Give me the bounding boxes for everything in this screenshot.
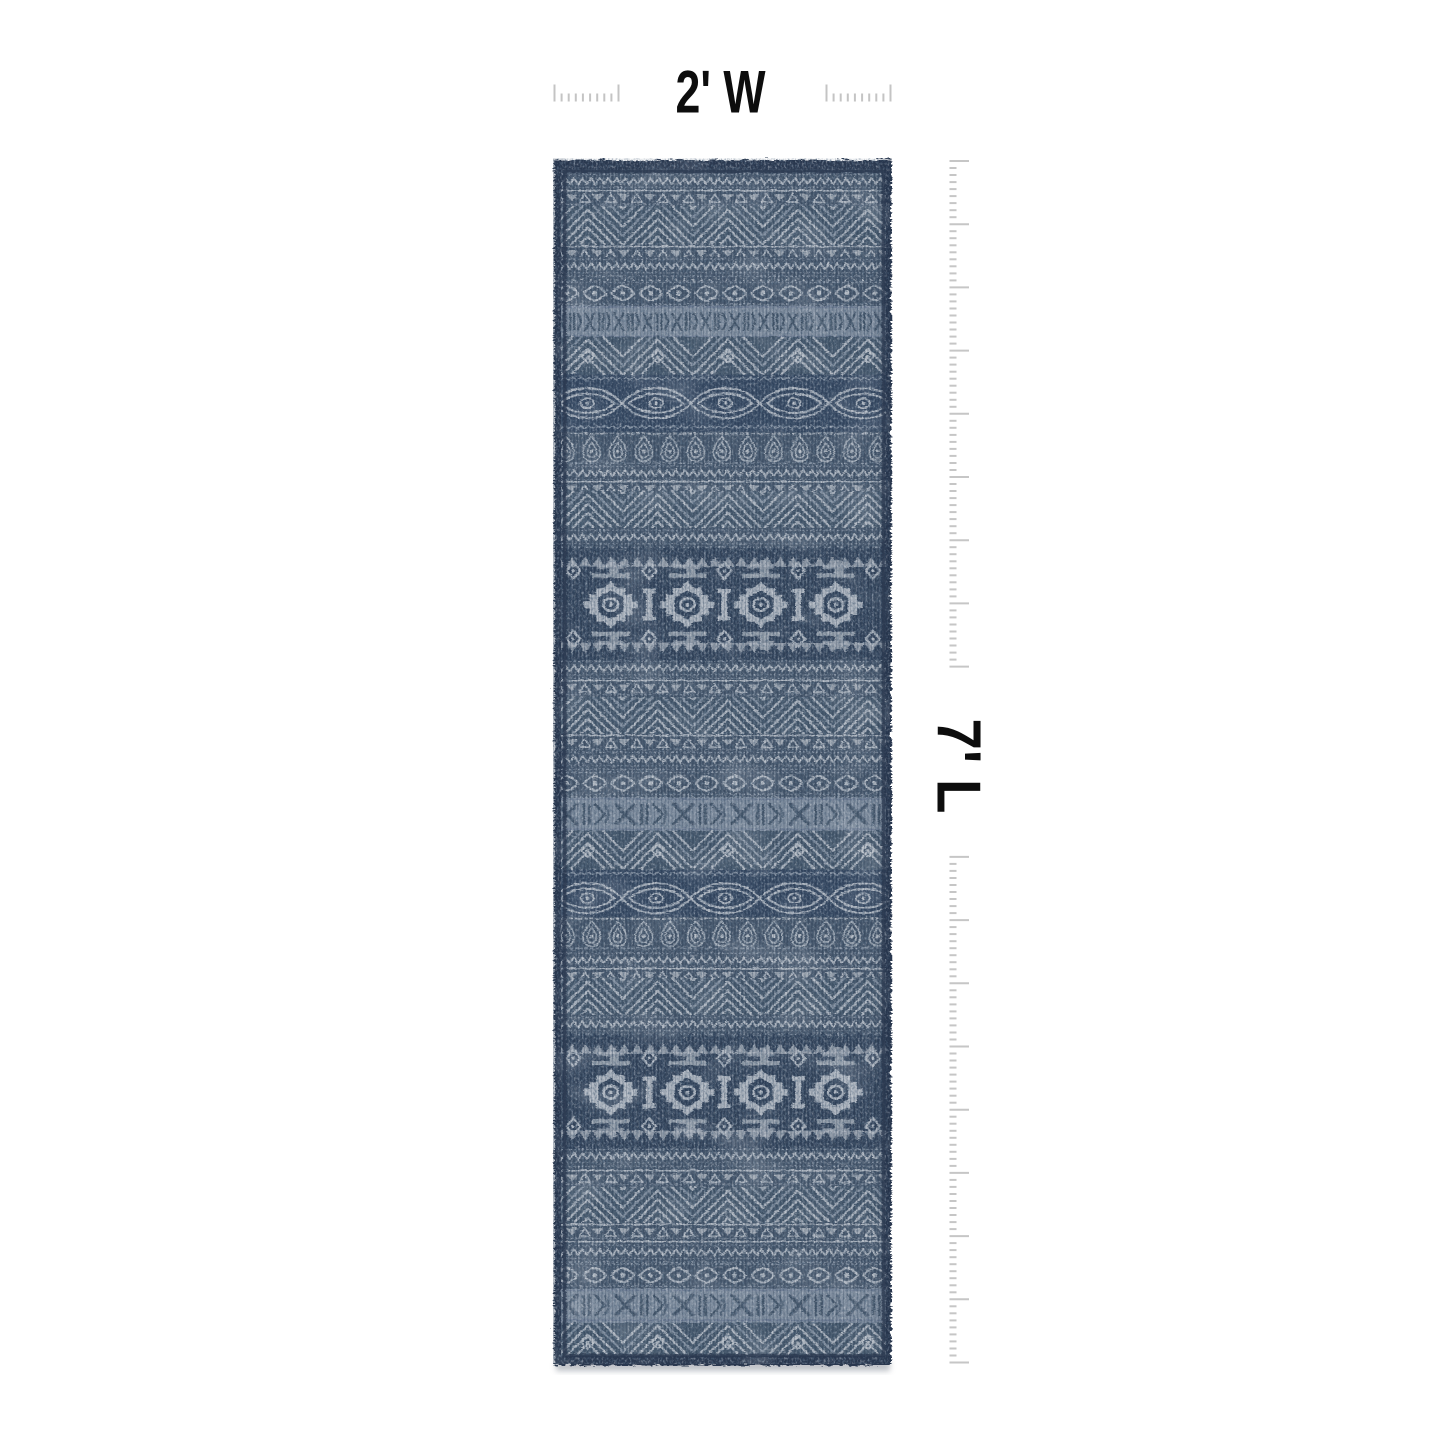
svg-text:2' W: 2' W (676, 59, 766, 126)
svg-text:7' L: 7' L (924, 719, 993, 814)
